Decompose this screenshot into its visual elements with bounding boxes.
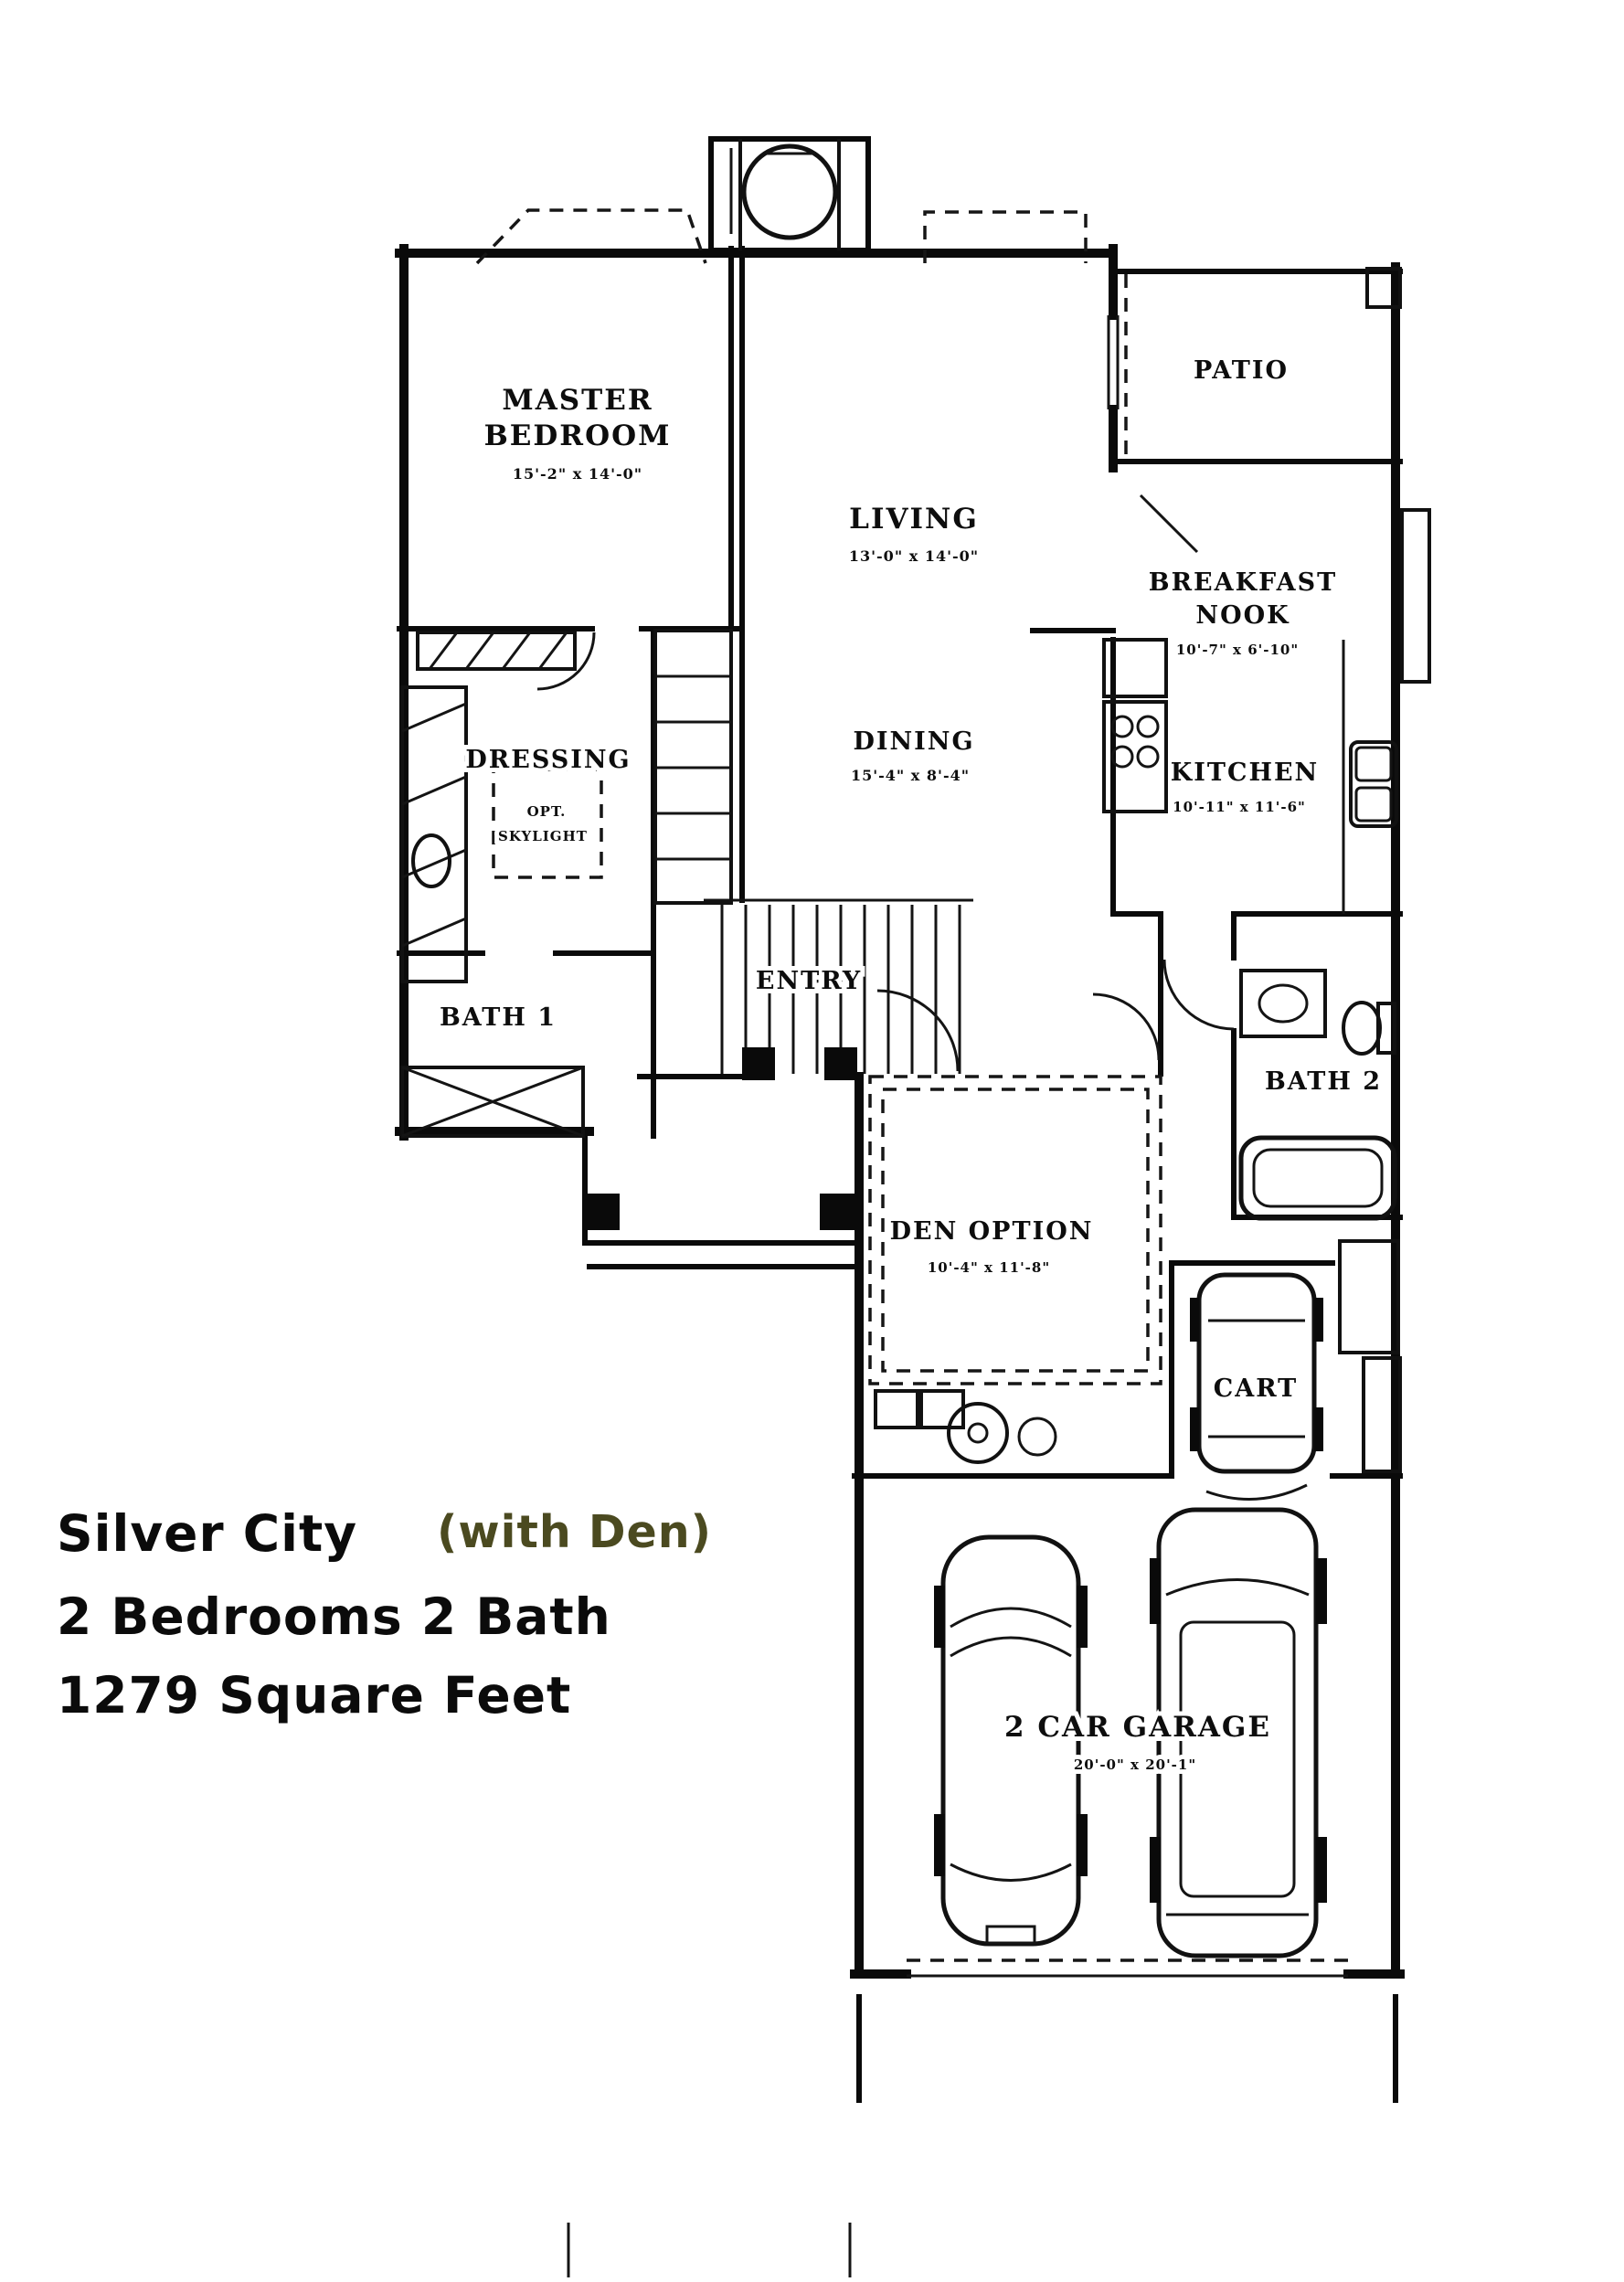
chimney-flue-icon: [744, 146, 835, 238]
golf-cart-icon: [1199, 1275, 1314, 1471]
den-option-label: DEN OPTION: [890, 1217, 1094, 1246]
skylight-note-line2: SKYLIGHT: [498, 828, 588, 844]
dressing-label: DRESSING: [465, 746, 631, 774]
entry-label: ENTRY: [756, 967, 862, 995]
dressing-sink-icon: [413, 835, 450, 886]
plan-area: 1279 Square Feet: [57, 1666, 571, 1725]
car1-wheel-1: [934, 1586, 945, 1648]
washer-icon: [876, 1391, 918, 1428]
master-bedroom-label-line1: MASTER: [502, 384, 653, 417]
floor-plan-canvas: MASTER BEDROOM 15'-2" x 14'-0" LIVING 13…: [0, 0, 1624, 2282]
cart-wheel-2: [1314, 1298, 1323, 1342]
den-option-dims: 10'-4" x 11'-8": [928, 1259, 1050, 1276]
dining-label: DINING: [853, 727, 974, 756]
cart-wheel-4: [1314, 1407, 1323, 1451]
car2-wheel-1: [1150, 1558, 1161, 1624]
dryer-icon: [921, 1391, 963, 1428]
bath2-label: BATH 2: [1265, 1067, 1382, 1096]
cart-label: CART: [1214, 1375, 1299, 1403]
breakfast-nook-label-line2: NOOK: [1195, 601, 1290, 630]
water-heater-core: [969, 1424, 987, 1442]
porch-post-left: [585, 1194, 620, 1230]
range-burner-2: [1138, 716, 1158, 737]
car1-wheel-2: [1077, 1586, 1088, 1648]
utility-sink-icon: [1019, 1418, 1056, 1455]
bath2-door-swing: [1164, 960, 1234, 1029]
car2-roof: [1181, 1622, 1294, 1896]
chimney-box: [711, 139, 868, 250]
breakfast-nook-dims: 10'-7" x 6'-10": [1176, 642, 1299, 658]
plan-bedrooms-baths: 2 Bedrooms 2 Bath: [57, 1587, 611, 1646]
bath2-toilet-icon: [1343, 1003, 1380, 1054]
kitchen-dims: 10'-11" x 11'-6": [1173, 799, 1306, 815]
kitchen-label: KITCHEN: [1171, 759, 1319, 787]
patio-label: PATIO: [1194, 356, 1289, 385]
bath1-closet-cross: [402, 1067, 583, 1136]
range-burner-4: [1138, 747, 1158, 767]
car1-plate: [987, 1926, 1035, 1943]
master-wardrobe-hatch: [402, 704, 466, 946]
door-jamb-2: [824, 1047, 857, 1080]
bath2-vanity: [1241, 971, 1325, 1036]
master-bedroom-label-line2: BEDROOM: [484, 419, 672, 452]
breakfast-nook-label-line1: BREAKFAST: [1149, 568, 1337, 597]
porch-post-right: [820, 1194, 854, 1230]
optional-skylight-outline: [494, 770, 601, 877]
garage-label: 2 CAR GARAGE: [1004, 1711, 1271, 1744]
dressing-closet-hatch: [430, 632, 567, 669]
car2-wheel-4: [1316, 1837, 1327, 1903]
plan-title-variant: (with Den): [437, 1506, 712, 1558]
car1-wheel-3: [934, 1814, 945, 1876]
garage-dims: 20'-0" x 20'-1": [1074, 1757, 1196, 1773]
chimney-inner-walls: [740, 139, 839, 250]
car1-detail: [950, 1608, 1071, 1881]
skylight-note-line1: OPT.: [527, 803, 567, 820]
door-jamb-1: [742, 1047, 775, 1080]
car2-wheel-2: [1316, 1558, 1327, 1624]
bath1-label: BATH 1: [440, 1003, 557, 1032]
living-label: LIVING: [849, 503, 979, 536]
car1-wheel-4: [1077, 1814, 1088, 1876]
dining-dims: 15'-4" x 8'-4": [851, 767, 970, 784]
kitchen-sink-bowl-1: [1356, 748, 1391, 780]
car2-detail: [1166, 1580, 1309, 1916]
linen-closet-shelves: [655, 676, 731, 859]
plan-title: Silver City: [57, 1504, 357, 1563]
nook-window-seat: [1402, 510, 1429, 682]
cart-wheel-3: [1190, 1407, 1199, 1451]
master-bedroom-dims: 15'-2" x 14'-0": [513, 465, 642, 483]
driveway-edges: [859, 1997, 1396, 2100]
kitchen-sink-bowl-2: [1356, 788, 1391, 821]
car2-wheel-3: [1150, 1837, 1161, 1903]
bath2-sink-icon: [1259, 985, 1307, 1022]
living-dims: 13'-0" x 14'-0": [849, 547, 979, 565]
bath2-tub-inner: [1254, 1150, 1382, 1206]
nook-door-leaf: [1141, 495, 1197, 552]
water-heater-icon: [949, 1404, 1007, 1462]
den-door-swing: [1093, 994, 1159, 1060]
garage-storage-1: [1340, 1241, 1398, 1353]
cart-wheel-1: [1190, 1298, 1199, 1342]
